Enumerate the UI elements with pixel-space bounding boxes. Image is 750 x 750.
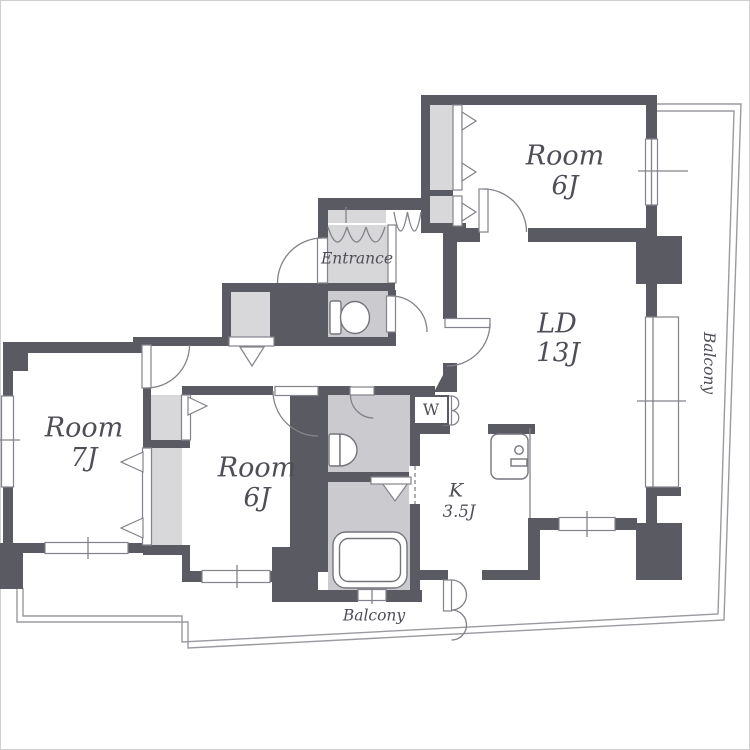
pillar-entrance xyxy=(270,283,328,345)
vanity-sink-icon xyxy=(329,434,357,466)
window xyxy=(638,139,688,205)
toilet-icon xyxy=(330,301,370,334)
kitchen-sink-icon xyxy=(491,434,528,479)
floor-plan: Room 6J LD 13J Room 7J Room 6J K 3.5J En… xyxy=(0,0,750,750)
balcony-label-bottom: Balcony xyxy=(343,608,405,624)
pillar-ne xyxy=(636,236,682,284)
bathtub-icon xyxy=(333,532,407,588)
window xyxy=(202,565,270,588)
kitchen-size: 3.5J xyxy=(443,504,476,521)
window xyxy=(637,317,686,487)
window xyxy=(0,396,20,487)
corner-s xyxy=(272,547,318,602)
door-room7j xyxy=(142,345,190,388)
door-toilet xyxy=(387,296,428,332)
dashed-opening xyxy=(409,466,421,504)
folding-door-marker xyxy=(462,203,476,221)
room-label: Room xyxy=(218,455,296,482)
washing-machine-label: W xyxy=(423,402,439,418)
floor-plan-drawing xyxy=(0,0,750,750)
room-size: 6J xyxy=(244,485,271,511)
balcony-label-right: Balcony xyxy=(700,332,716,394)
room-size: 7J xyxy=(71,445,98,471)
room-label: Room xyxy=(526,143,604,170)
folding-door-marker xyxy=(462,163,476,181)
folding-door-marker xyxy=(121,518,143,538)
window xyxy=(559,511,615,537)
door-room6j-top xyxy=(479,189,527,232)
window xyxy=(45,537,128,559)
room-size: 13J xyxy=(536,340,580,366)
entrance-label: Entrance xyxy=(321,251,393,267)
pillar-se xyxy=(636,523,682,580)
room-label: Room xyxy=(45,415,123,442)
door-ld xyxy=(445,319,490,367)
folding-door-marker xyxy=(188,397,207,415)
folding-door-marker xyxy=(462,112,476,130)
folding-door-marker xyxy=(121,452,143,472)
folding-door-marker xyxy=(240,347,264,366)
door-kitchen-balcony xyxy=(444,580,467,640)
room-label: LD xyxy=(537,311,577,338)
entrance-door-scallops xyxy=(394,212,421,231)
kitchen-label: K xyxy=(449,482,463,501)
room-size: 6J xyxy=(552,173,579,199)
